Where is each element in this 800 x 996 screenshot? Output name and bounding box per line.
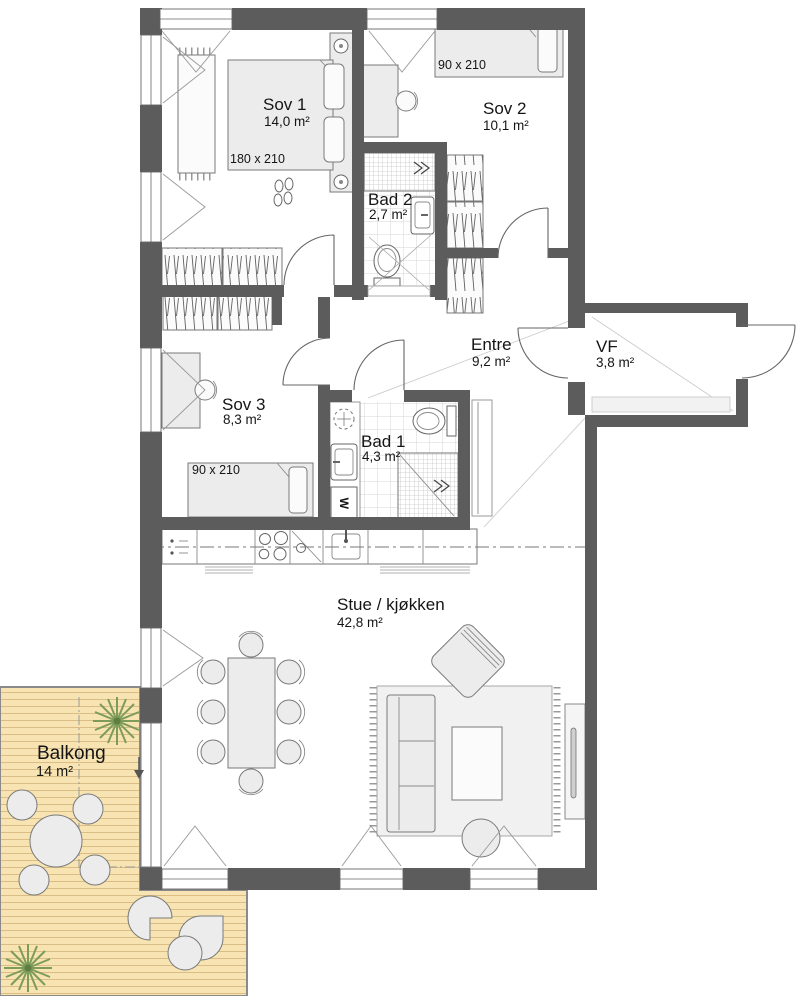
door-vf-entre [518,328,568,378]
room-area-entre: 9,2 m² [472,355,510,369]
dining-set [197,631,304,794]
room-area-sov3: 8,3 m² [223,413,261,427]
sight-line [484,418,585,527]
room-area-sov1: 14,0 m² [264,115,310,129]
door-bad1 [354,340,404,390]
bed-size-sov2: 90 x 210 [438,59,486,72]
door-sov1 [284,235,334,285]
entre-wardrobe [447,258,483,313]
room-label-vf: VF [596,338,618,356]
tv-bench [565,704,585,819]
room-area-vf: 3,8 m² [596,356,634,370]
room-area-sov2: 10,1 m² [483,119,529,133]
sov2-wardrobe [447,155,483,248]
sov3-wardrobe [163,292,272,330]
room-area-bad2: 2,7 m² [369,208,407,222]
sov3-furniture [162,353,313,517]
door-sov2 [498,208,548,258]
bed-size-sov1: 180 x 210 [230,153,285,166]
plant-icon [4,944,52,992]
bed-size-sov3: 90 x 210 [192,464,240,477]
room-label-stue: Stue / kjøkken [337,596,445,614]
door-entrance [742,325,795,378]
room-label-balkong: Balkong [37,744,106,764]
washer-label: W [337,498,350,509]
room-label-sov1: Sov 1 [263,96,306,114]
sov1-wardrobe [162,248,282,287]
sofa [387,695,435,832]
room-area-stue: 42,8 m² [337,616,383,630]
room-area-bad1: 4,3 m² [362,450,400,464]
room-area-balkong: 14 m² [36,765,73,780]
tv-icon [571,728,576,798]
sov2-furniture [360,23,563,137]
room-label-entre: Entre [471,336,512,354]
floorplan-canvas: Sov 1 14,0 m² 180 x 210 Sov 2 10,1 m² 90… [0,0,800,996]
room-label-sov2: Sov 2 [483,100,526,118]
door-sov3 [283,338,330,385]
plant-icon [93,697,141,745]
floorplan-svg [0,0,800,996]
bad1-room [330,402,458,528]
kitchen-counter [150,529,585,573]
shaft [472,400,492,516]
coffee-table [452,727,502,800]
